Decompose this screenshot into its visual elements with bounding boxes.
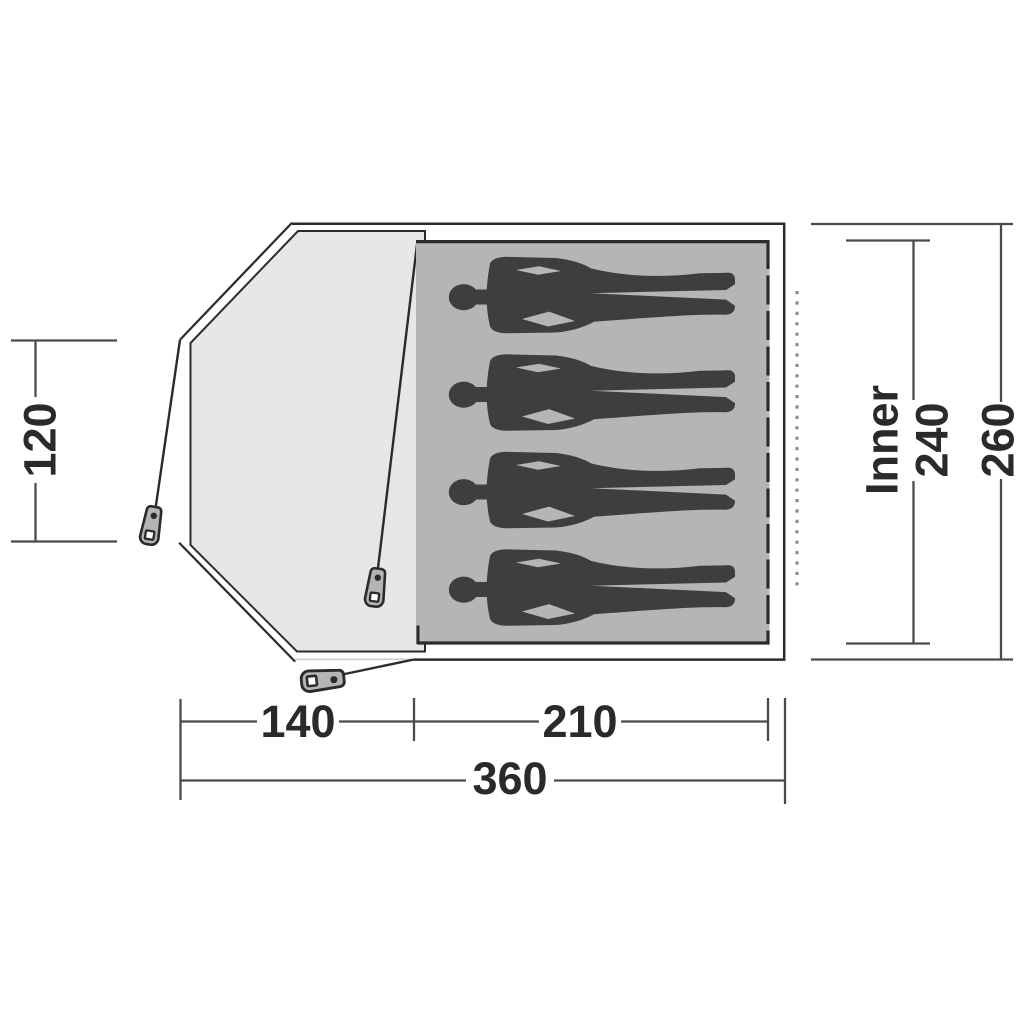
- svg-text:260: 260: [973, 402, 1024, 477]
- svg-text:140: 140: [260, 696, 335, 747]
- svg-text:Inner: Inner: [857, 385, 908, 495]
- svg-text:210: 210: [542, 696, 617, 747]
- svg-text:240: 240: [907, 402, 958, 477]
- svg-text:120: 120: [15, 402, 66, 477]
- svg-text:360: 360: [472, 753, 547, 804]
